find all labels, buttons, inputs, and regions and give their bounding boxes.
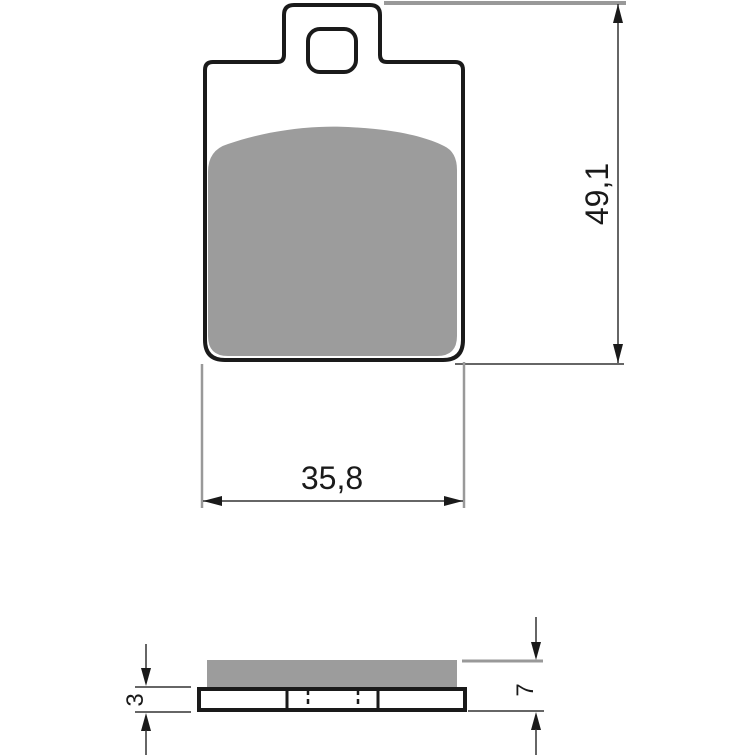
pin-hole [308, 29, 356, 72]
side-view [199, 660, 465, 711]
thickness-arrow-top [531, 642, 541, 660]
height-dimension-label: 49,1 [579, 163, 615, 225]
dimension-total-thickness: 7 [462, 617, 544, 755]
width-dimension-label: 35,8 [301, 460, 363, 496]
backplate-thickness-label: 3 [122, 693, 149, 706]
total-thickness-label: 7 [512, 683, 539, 696]
width-arrow-left [203, 496, 222, 506]
friction-material-front [208, 127, 457, 356]
backplate-arrow-top [141, 668, 151, 686]
drawing-canvas: 49,1 35,8 [0, 0, 755, 755]
brake-pad-technical-drawing: 49,1 35,8 [0, 0, 755, 755]
backplate-side [199, 689, 465, 710]
height-arrow-bottom [613, 344, 623, 363]
front-view [205, 5, 463, 360]
height-arrow-top [613, 4, 623, 23]
thickness-arrow-bottom [531, 712, 541, 730]
dimension-backplate-thickness: 3 [122, 644, 191, 755]
dimension-width: 35,8 [202, 362, 464, 508]
width-arrow-right [444, 496, 463, 506]
friction-material-side [207, 660, 457, 687]
backplate-arrow-bottom [141, 713, 151, 731]
